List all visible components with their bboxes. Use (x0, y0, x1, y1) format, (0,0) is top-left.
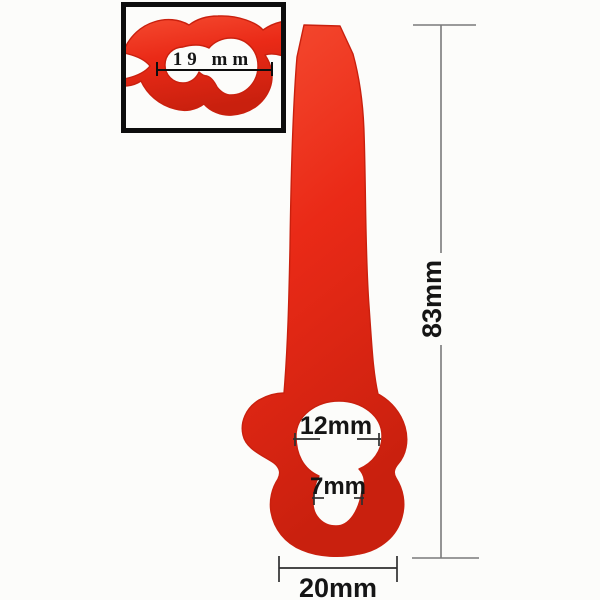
inset-hole-dimension-label: 19 mm (173, 49, 253, 70)
inset-detail: 19 mm (124, 5, 287, 131)
large-hole-dimension: 12mm (293, 412, 381, 446)
diagram-canvas: 19 mm 83mm 20mm 12mm (0, 0, 600, 600)
small-hole-dimension-label: 7mm (310, 473, 366, 500)
width-dimension: 20mm (279, 556, 397, 600)
height-dimension-label: 83mm (417, 260, 447, 338)
large-hole-dimension-label: 12mm (300, 412, 372, 440)
small-hole-dimension: 7mm (310, 473, 366, 505)
height-dimension: 83mm (412, 25, 479, 558)
width-dimension-label: 20mm (299, 573, 377, 600)
trimmer-blade-dimension-diagram: 19 mm 83mm 20mm 12mm (0, 0, 600, 600)
